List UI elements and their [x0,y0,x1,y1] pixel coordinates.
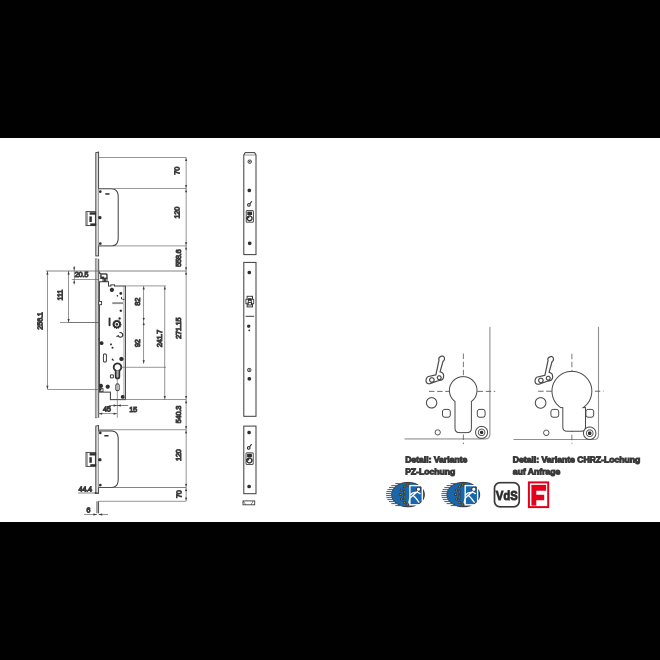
svg-text:271.15: 271.15 [174,318,183,339]
svg-text:558.6: 558.6 [174,249,183,266]
svg-text:15: 15 [129,405,137,414]
svg-text:PZ-Lochung: PZ-Lochung [405,466,455,476]
svg-text:120: 120 [174,449,183,461]
svg-text:82: 82 [133,298,142,306]
svg-text:6: 6 [86,505,90,514]
svg-text:Detail: Variante CHRZ-Lochung: Detail: Variante CHRZ-Lochung [513,454,640,464]
svg-text:256.1: 256.1 [36,312,45,329]
svg-text:70: 70 [173,167,182,175]
svg-text:111: 111 [56,290,65,301]
svg-text:VdS: VdS [496,488,518,503]
svg-text:Detail: Variante: Detail: Variante [405,454,467,464]
svg-text:20.5: 20.5 [75,270,89,279]
svg-text:44.4: 44.4 [78,484,92,493]
svg-text:auf Anfrage: auf Anfrage [513,466,561,476]
svg-text:70: 70 [174,490,183,498]
svg-text:241.7: 241.7 [155,330,164,347]
svg-text:92: 92 [133,339,142,347]
svg-text:120: 120 [173,207,182,219]
svg-text:540.3: 540.3 [174,406,183,423]
svg-text:45: 45 [103,405,111,414]
